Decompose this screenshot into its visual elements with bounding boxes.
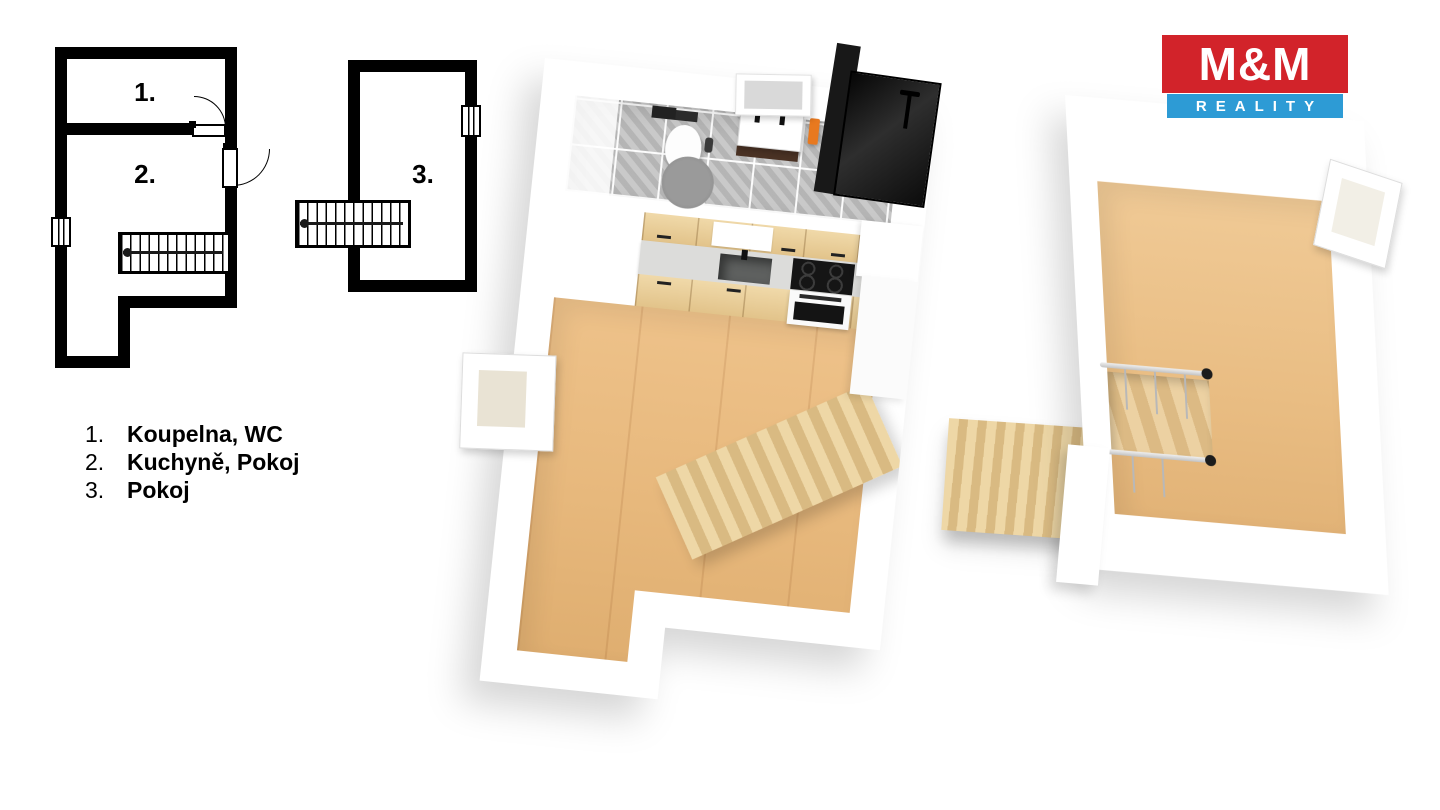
plan2d-building-left: 1. 2. <box>55 47 237 368</box>
legend: 1. Koupelna, WC 2. Kuchyně, Pokoj 3. Pok… <box>85 420 385 510</box>
legend-num: 2. <box>85 449 115 476</box>
mirror-glass <box>744 81 802 110</box>
bathroom-mirror <box>735 73 812 116</box>
oven <box>787 290 852 330</box>
room2-label: 2. <box>115 159 175 190</box>
mm-reality-banner: REALITY <box>1167 94 1343 118</box>
render-floor2 <box>1065 95 1389 595</box>
shower-fixture <box>903 95 912 129</box>
stairs-start-dot <box>123 248 132 257</box>
plan2d-building-right: 3. <box>348 60 477 292</box>
legend-label: Pokoj <box>127 477 190 504</box>
room3-label: 3. <box>393 159 453 190</box>
legend-label: Kuchyně, Pokoj <box>127 449 300 476</box>
tall-cabinet <box>850 276 918 399</box>
stairs-2d-left <box>118 232 231 274</box>
wall-left-lower <box>348 245 360 292</box>
render-floor1 <box>476 58 938 756</box>
legend-label: Koupelna, WC <box>127 421 283 448</box>
oven-door <box>793 301 845 324</box>
shower-enclosure <box>833 70 942 208</box>
door-leaf-interior <box>192 124 226 137</box>
door-leaf-entry <box>222 148 238 188</box>
window-floor1 <box>459 352 556 451</box>
legend-item-3: 3. Pokoj <box>85 476 190 504</box>
window-right-wall <box>461 105 481 137</box>
stairs-runline <box>123 251 223 254</box>
wall-bottom-corridor <box>55 356 130 368</box>
door-hinge-interior <box>189 121 196 128</box>
wall-right-lower <box>465 133 477 292</box>
kitchen-faucet <box>741 250 748 261</box>
stairs-start-dot <box>300 219 309 228</box>
cooktop <box>790 258 855 295</box>
wall-right-upper <box>225 47 237 148</box>
window-left-wall <box>51 217 71 247</box>
mm-reality-logo: M&M <box>1162 35 1348 93</box>
wall-bottom-main <box>118 296 237 308</box>
stairs-2d-right <box>295 200 411 248</box>
window-glass <box>477 370 527 428</box>
door-arc-entry <box>233 149 270 186</box>
legend-num: 1. <box>85 421 115 448</box>
toilet-brush <box>704 137 714 153</box>
wall-left-upper <box>348 60 360 202</box>
logo-text: M&M <box>1199 37 1312 91</box>
room1-label: 1. <box>115 77 175 108</box>
logo-subtext: REALITY <box>1187 98 1323 115</box>
kitchen-white-unit <box>856 220 924 282</box>
wall-right-upper <box>465 60 477 105</box>
stair-opening-steps <box>1107 372 1213 462</box>
vent-panel <box>651 106 676 120</box>
legend-item-1: 1. Koupelna, WC <box>85 420 283 448</box>
floorplan-image: 1. 2. 3. 1. Koupelna, WC 2. Kuchyně, Pok… <box>0 0 1440 810</box>
stairs-runline <box>300 222 403 225</box>
door-hinge-entry <box>223 143 230 150</box>
wall-bottom <box>348 280 477 292</box>
legend-item-2: 2. Kuchyně, Pokoj <box>85 448 300 476</box>
wall-top <box>55 47 237 59</box>
wall-top <box>348 60 477 72</box>
wall-left-lower <box>55 243 67 368</box>
oven-controls <box>799 294 841 302</box>
faucet <box>779 116 785 125</box>
legend-num: 3. <box>85 477 115 504</box>
window-glass <box>1331 178 1385 246</box>
toilet-flush-plate <box>675 110 698 122</box>
wall-divider <box>55 123 192 135</box>
